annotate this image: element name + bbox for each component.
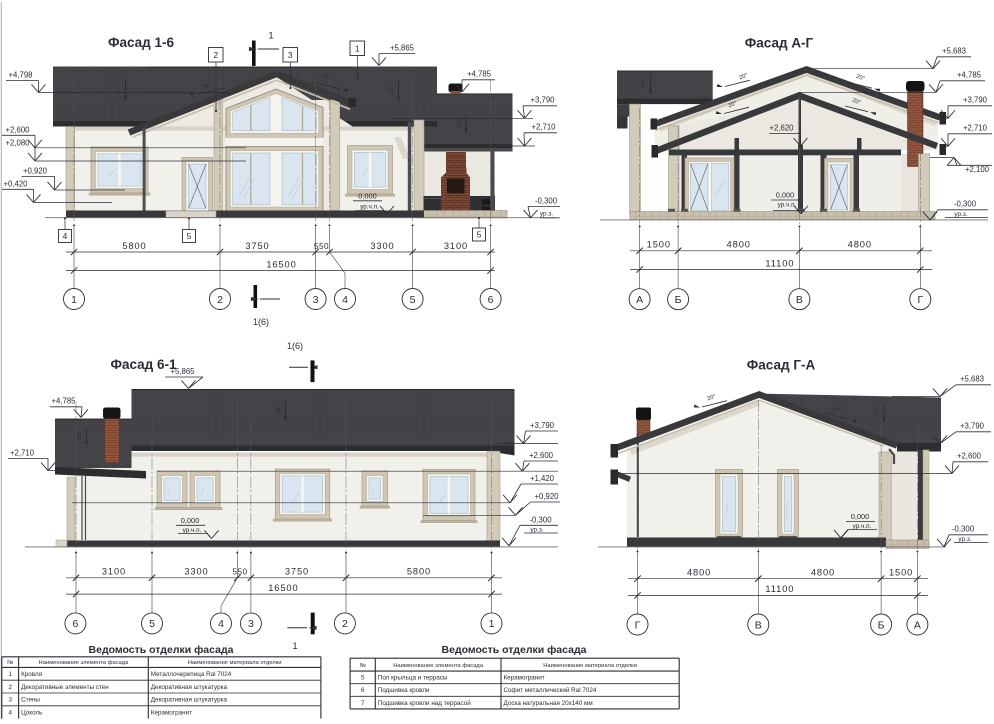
- svg-text:А: А: [636, 294, 643, 306]
- svg-text:-0,300: -0,300: [954, 200, 977, 209]
- svg-text:В: В: [755, 619, 762, 631]
- svg-text:20°: 20°: [390, 86, 396, 94]
- svg-text:4: 4: [63, 231, 68, 241]
- svg-text:16500: 16500: [268, 583, 298, 593]
- svg-text:+4,785: +4,785: [467, 70, 492, 79]
- svg-text:3100: 3100: [102, 567, 126, 577]
- svg-text:+0,920: +0,920: [23, 167, 48, 176]
- svg-text:Фасад 1-6: Фасад 1-6: [108, 35, 175, 50]
- svg-text:+2,080: +2,080: [5, 138, 30, 147]
- svg-text:+5,683: +5,683: [942, 47, 966, 56]
- svg-text:+5,865: +5,865: [170, 367, 195, 376]
- svg-text:20°: 20°: [875, 407, 881, 415]
- svg-text:5800: 5800: [407, 567, 431, 577]
- svg-text:+2,710: +2,710: [10, 448, 35, 457]
- svg-text:0,000: 0,000: [776, 191, 795, 200]
- svg-text:1: 1: [268, 31, 273, 42]
- svg-text:0,000: 0,000: [851, 512, 870, 521]
- svg-text:+0,420: +0,420: [3, 179, 28, 188]
- svg-text:5: 5: [149, 618, 155, 630]
- svg-text:6: 6: [361, 687, 365, 694]
- svg-text:Подшивка кровли: Подшивка кровли: [378, 687, 430, 694]
- svg-text:5: 5: [410, 294, 416, 306]
- svg-text:Кровля: Кровля: [21, 671, 42, 678]
- svg-text:Доска натуральная 20х140 мм: Доска натуральная 20х140 мм: [504, 700, 593, 707]
- svg-text:4: 4: [8, 709, 12, 716]
- svg-text:Металлочерепица Ral 7024: Металлочерепица Ral 7024: [151, 671, 232, 678]
- svg-text:550: 550: [314, 242, 329, 251]
- svg-text:+3,790: +3,790: [530, 421, 555, 430]
- svg-text:+3,790: +3,790: [963, 96, 988, 105]
- svg-text:Фасад Г-А: Фасад Г-А: [747, 358, 816, 373]
- svg-text:+2,600: +2,600: [957, 452, 982, 461]
- svg-text:Керамогранит: Керамогранит: [504, 675, 545, 682]
- svg-text:2: 2: [342, 618, 348, 630]
- svg-text:3750: 3750: [285, 567, 309, 577]
- svg-text:Софит металлический Ral 7024: Софит металлический Ral 7024: [504, 686, 597, 694]
- svg-text:+3,790: +3,790: [960, 422, 985, 431]
- svg-text:+2,710: +2,710: [963, 124, 988, 133]
- svg-text:Фасад А-Г: Фасад А-Г: [745, 36, 814, 51]
- svg-text:2: 2: [213, 50, 218, 60]
- svg-text:3: 3: [313, 294, 319, 306]
- svg-text:А: А: [914, 619, 921, 631]
- svg-text:3: 3: [288, 50, 293, 60]
- svg-text:4800: 4800: [811, 568, 835, 578]
- svg-text:7: 7: [361, 700, 365, 707]
- svg-text:2: 2: [217, 294, 223, 306]
- svg-text:Декоративная штукатурка: Декоративная штукатурка: [151, 684, 228, 691]
- svg-text:16500: 16500: [266, 260, 296, 270]
- svg-text:3750: 3750: [245, 241, 269, 251]
- svg-text:+5,865: +5,865: [390, 43, 415, 52]
- svg-text:Цоколь: Цоколь: [21, 709, 43, 716]
- svg-text:Подшивка кровли над террасой: Подшивка кровли над террасой: [378, 699, 471, 707]
- svg-text:№: №: [360, 663, 366, 669]
- svg-text:Г: Г: [635, 619, 641, 631]
- svg-text:11100: 11100: [765, 258, 794, 268]
- svg-text:3: 3: [8, 697, 12, 704]
- svg-text:5: 5: [361, 675, 365, 682]
- svg-text:0,000: 0,000: [181, 516, 200, 525]
- svg-text:ур.з.: ур.з.: [530, 526, 543, 533]
- svg-text:ур.ч.п.: ур.ч.п.: [183, 527, 202, 534]
- svg-text:550: 550: [232, 568, 247, 577]
- svg-text:Г: Г: [917, 294, 923, 306]
- svg-text:6: 6: [72, 618, 78, 630]
- svg-text:Наименование элемента фасада: Наименование элемента фасада: [393, 663, 484, 669]
- svg-text:+1,420: +1,420: [530, 474, 555, 483]
- svg-text:20°: 20°: [117, 86, 123, 94]
- svg-text:Стены: Стены: [21, 697, 40, 704]
- svg-text:Б: Б: [675, 294, 682, 306]
- svg-text:ур.ч.п.: ур.ч.п.: [360, 203, 379, 210]
- svg-text:4800: 4800: [848, 240, 872, 250]
- svg-text:+2,600: +2,600: [529, 451, 554, 460]
- svg-text:1: 1: [489, 618, 495, 630]
- svg-text:11100: 11100: [765, 584, 794, 594]
- svg-text:+5,683: +5,683: [960, 375, 984, 384]
- svg-text:Наименование элемента фасада: Наименование элемента фасада: [39, 660, 130, 666]
- svg-text:3300: 3300: [184, 567, 208, 577]
- svg-text:ур.з.: ур.з.: [958, 536, 971, 543]
- svg-text:ур.з.: ур.з.: [954, 211, 967, 218]
- svg-text:6: 6: [488, 294, 494, 306]
- svg-text:5: 5: [477, 230, 482, 240]
- svg-text:ур.ч.п.: ур.ч.п.: [853, 523, 872, 530]
- svg-text:1500: 1500: [889, 568, 913, 578]
- svg-text:+2,620: +2,620: [769, 124, 794, 133]
- svg-text:3: 3: [248, 618, 254, 630]
- svg-text:4800: 4800: [687, 568, 711, 578]
- svg-text:2: 2: [8, 684, 12, 691]
- svg-text:Б: Б: [878, 619, 885, 631]
- svg-text:Декоративные элементы стен: Декоративные элементы стен: [21, 684, 109, 691]
- svg-text:5800: 5800: [122, 241, 146, 251]
- svg-text:1(6): 1(6): [253, 317, 269, 327]
- svg-text:1: 1: [8, 671, 12, 678]
- svg-text:Декоративная штукатурка: Декоративная штукатурка: [151, 697, 228, 704]
- svg-text:+2,100: +2,100: [965, 165, 990, 174]
- svg-text:4: 4: [342, 294, 348, 306]
- svg-text:3300: 3300: [370, 241, 394, 251]
- svg-text:-0,300: -0,300: [952, 525, 975, 534]
- svg-text:-0,300: -0,300: [529, 516, 552, 525]
- svg-text:+4,798: +4,798: [8, 71, 32, 80]
- svg-text:20°: 20°: [77, 432, 83, 440]
- svg-text:№: №: [7, 660, 13, 666]
- svg-text:В: В: [796, 294, 803, 306]
- svg-text:20°: 20°: [641, 79, 647, 87]
- svg-text:4: 4: [218, 618, 224, 630]
- svg-text:1: 1: [292, 641, 297, 652]
- svg-text:Ведомость отделки фасада: Ведомость отделки фасада: [442, 644, 587, 656]
- svg-text:Фасад 6-1: Фасад 6-1: [110, 357, 177, 372]
- svg-text:+0,920: +0,920: [534, 492, 559, 501]
- svg-text:+4,785: +4,785: [957, 71, 982, 80]
- svg-text:4800: 4800: [727, 240, 751, 250]
- svg-text:1(6): 1(6): [287, 341, 303, 351]
- svg-text:5: 5: [187, 231, 192, 241]
- svg-text:ур.з.: ур.з.: [540, 210, 553, 217]
- svg-text:-0,300: -0,300: [535, 197, 558, 206]
- svg-text:Пол крыльца и террасы: Пол крыльца и террасы: [378, 675, 448, 682]
- svg-text:ур.ч.п.: ур.ч.п.: [778, 201, 797, 208]
- svg-text:20°: 20°: [457, 118, 463, 126]
- svg-text:Ведомость отделки фасада: Ведомость отделки фасада: [89, 644, 234, 656]
- svg-text:+4,785: +4,785: [51, 397, 76, 406]
- svg-text:+3,790: +3,790: [530, 96, 555, 105]
- svg-text:Керамогранит: Керамогранит: [151, 709, 192, 716]
- svg-text:+2,710: +2,710: [531, 123, 556, 132]
- svg-text:3100: 3100: [444, 241, 468, 251]
- svg-text:20°: 20°: [276, 406, 282, 414]
- svg-text:0,000: 0,000: [358, 192, 377, 201]
- svg-text:1: 1: [71, 294, 77, 306]
- svg-text:1: 1: [355, 43, 360, 53]
- svg-text:Наименование материала отделки: Наименование материала отделки: [543, 663, 637, 669]
- svg-text:Наименование материала отделки: Наименование материала отделки: [188, 660, 282, 666]
- svg-text:1500: 1500: [647, 240, 671, 250]
- svg-text:+2,600: +2,600: [5, 125, 30, 134]
